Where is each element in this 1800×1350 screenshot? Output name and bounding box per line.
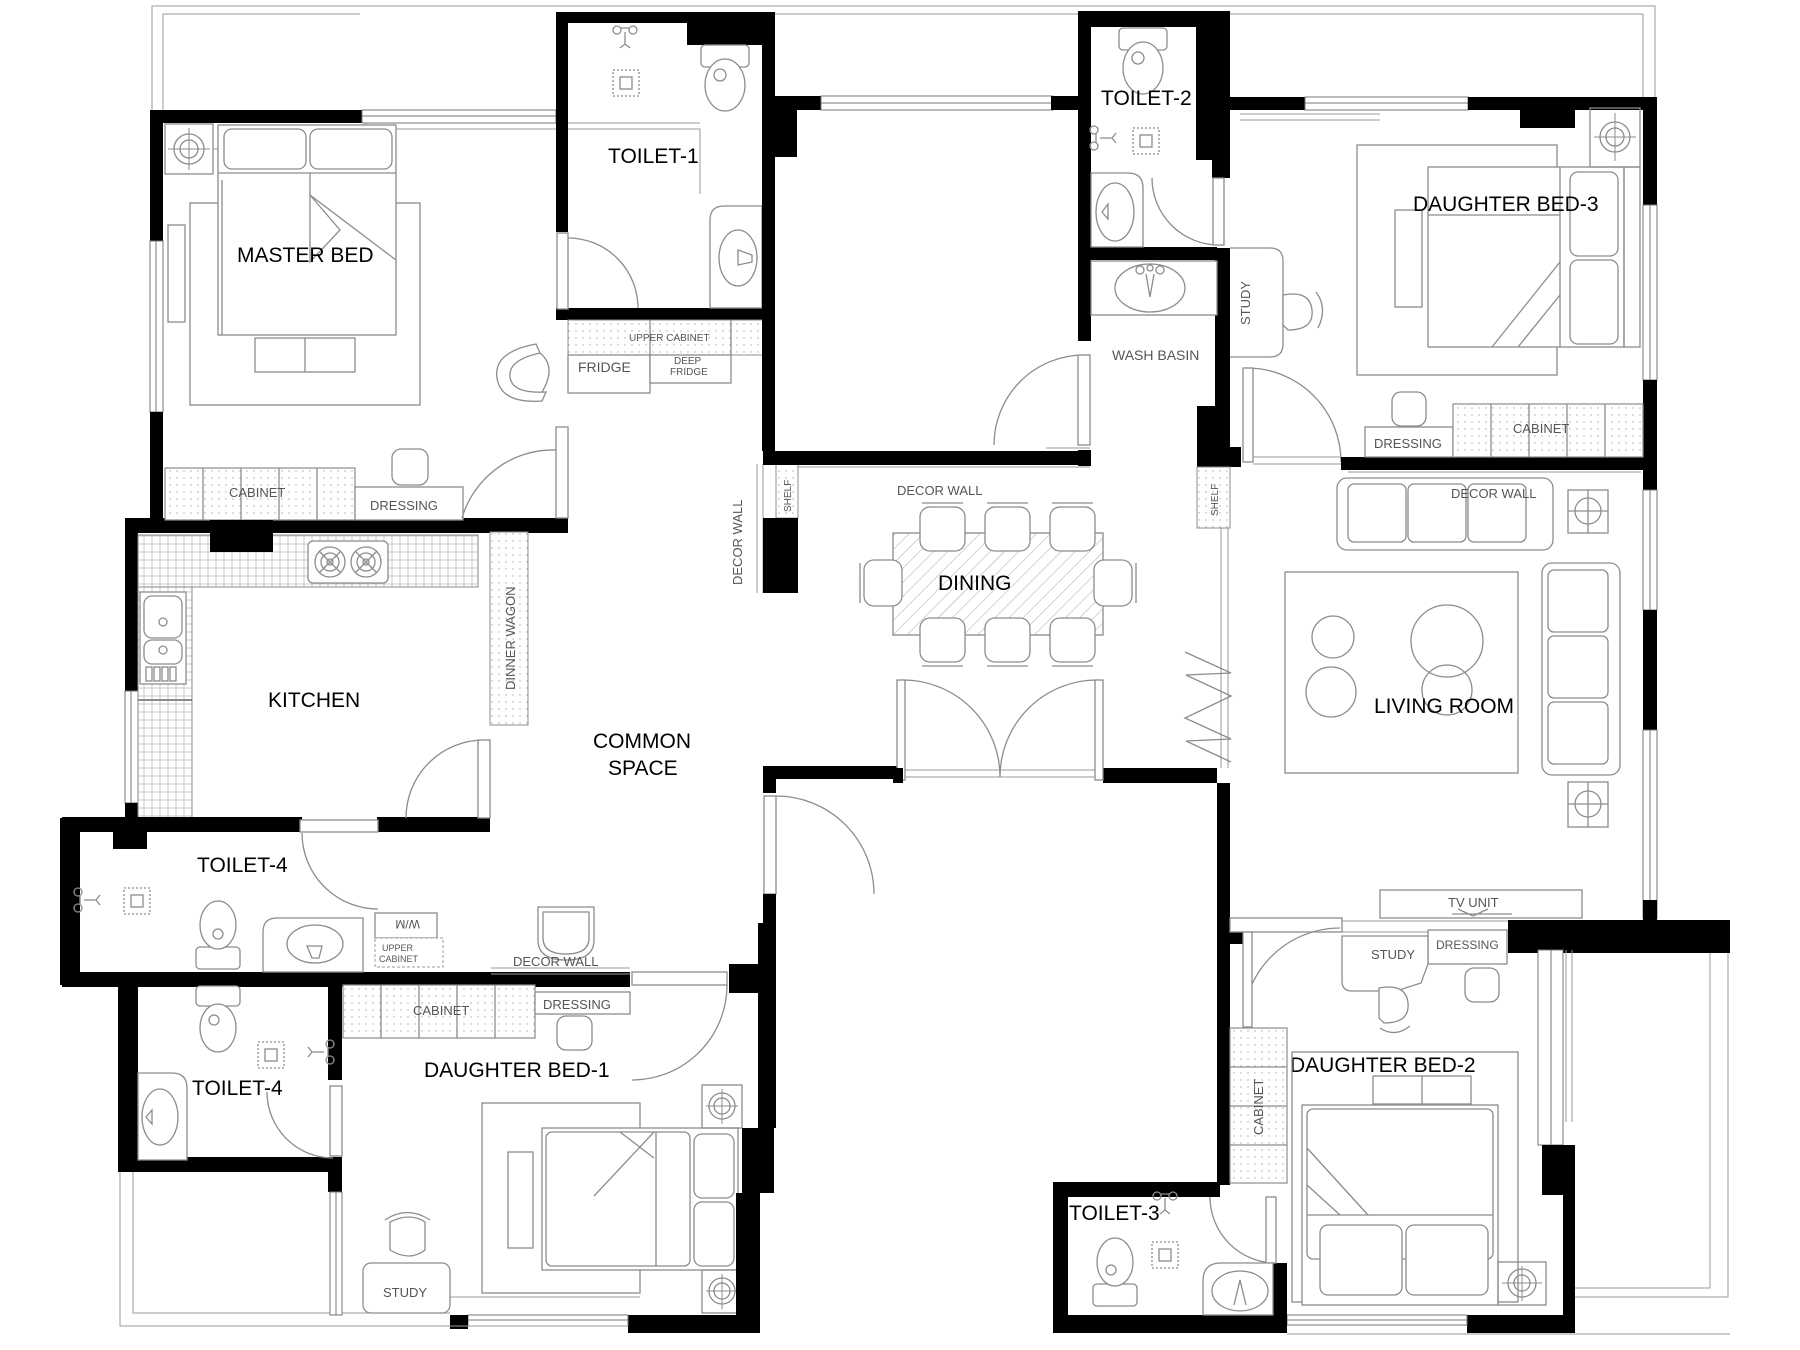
- svg-text:TOILET-3: TOILET-3: [1069, 1202, 1160, 1225]
- svg-text:KITCHEN: KITCHEN: [268, 689, 360, 712]
- svg-text:TOILET-2: TOILET-2: [1101, 87, 1192, 110]
- svg-text:DRESSING: DRESSING: [543, 997, 611, 1012]
- svg-text:STUDY: STUDY: [1371, 947, 1415, 962]
- svg-text:W/M: W/M: [395, 917, 420, 931]
- svg-text:LIVING ROOM: LIVING ROOM: [1374, 695, 1514, 718]
- svg-text:DECOR WALL: DECOR WALL: [1451, 486, 1536, 501]
- svg-text:CABINET: CABINET: [379, 954, 419, 964]
- svg-text:DAUGHTER BED-3: DAUGHTER BED-3: [1413, 193, 1599, 216]
- svg-text:DAUGHTER BED-1: DAUGHTER BED-1: [424, 1059, 610, 1082]
- svg-text:CABINET: CABINET: [1513, 421, 1569, 436]
- svg-text:STUDY: STUDY: [1238, 281, 1253, 325]
- svg-text:COMMON: COMMON: [593, 730, 691, 753]
- svg-text:FRIDGE: FRIDGE: [578, 359, 631, 375]
- svg-text:STUDY: STUDY: [383, 1285, 427, 1300]
- svg-text:CABINET: CABINET: [413, 1003, 469, 1018]
- svg-text:MASTER BED: MASTER BED: [237, 244, 374, 267]
- svg-text:DRESSING: DRESSING: [1436, 938, 1499, 952]
- svg-text:WASH BASIN: WASH BASIN: [1112, 347, 1199, 363]
- svg-text:DEEP: DEEP: [674, 356, 702, 367]
- svg-text:FRIDGE: FRIDGE: [670, 367, 708, 378]
- svg-text:CABINET: CABINET: [1251, 1079, 1266, 1135]
- svg-text:TV UNIT: TV UNIT: [1448, 895, 1499, 910]
- svg-text:SPACE: SPACE: [608, 757, 678, 780]
- svg-text:DINNER WAGON: DINNER WAGON: [503, 586, 518, 690]
- svg-text:DECOR WALL: DECOR WALL: [513, 954, 598, 969]
- svg-text:DINING: DINING: [938, 572, 1012, 595]
- svg-text:CABINET: CABINET: [229, 485, 285, 500]
- svg-text:DRESSING: DRESSING: [370, 498, 438, 513]
- svg-text:SHELF: SHELF: [783, 480, 794, 512]
- svg-text:DECOR WALL: DECOR WALL: [730, 500, 745, 585]
- svg-text:TOILET-1: TOILET-1: [608, 145, 699, 168]
- svg-text:DRESSING: DRESSING: [1374, 436, 1442, 451]
- svg-text:UPPER CABINET: UPPER CABINET: [629, 333, 710, 344]
- svg-text:DECOR WALL: DECOR WALL: [897, 483, 982, 498]
- svg-text:DAUGHTER BED-2: DAUGHTER BED-2: [1290, 1054, 1476, 1077]
- svg-text:SHELF: SHELF: [1210, 484, 1221, 516]
- svg-text:UPPER: UPPER: [382, 943, 414, 953]
- svg-text:TOILET-4: TOILET-4: [192, 1077, 283, 1100]
- svg-text:TOILET-4: TOILET-4: [197, 854, 288, 877]
